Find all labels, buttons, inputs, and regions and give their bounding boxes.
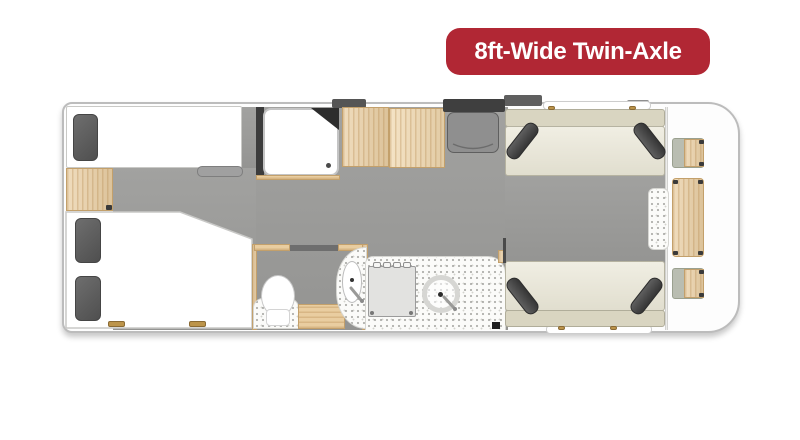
hob-knob-3: [393, 262, 401, 268]
bedroom-floor: [113, 166, 258, 330]
shelf-bracket-3: [699, 270, 704, 274]
single-bed-pillow: [73, 114, 98, 161]
model-badge: 8ft-Wide Twin-Axle: [446, 28, 710, 75]
cabinet-right: [389, 108, 445, 168]
bed-window-stay-1: [108, 321, 125, 327]
shower-drain: [326, 163, 331, 168]
table-bracket-4: [698, 251, 703, 255]
lounge-table-top: [648, 188, 669, 250]
window-stay-top-1: [548, 106, 555, 110]
shower-screen-corner: [311, 108, 339, 130]
hob-foot-2: [409, 311, 413, 315]
lounge-floor: [505, 170, 668, 265]
sink-drain: [438, 292, 443, 297]
double-bed-pillow-2: [75, 276, 101, 321]
bedside-shelf: [197, 166, 243, 177]
toilet-base: [266, 309, 290, 326]
counter-socket: [492, 322, 500, 329]
window-stay-bottom-2: [610, 326, 617, 330]
washroom-door: [290, 245, 338, 251]
table-bracket-2: [698, 180, 703, 184]
basin: [342, 261, 362, 303]
bed-window-stay-2: [189, 321, 206, 327]
window-stay-bottom-1: [558, 326, 565, 330]
basin-drain: [350, 278, 354, 282]
hob-knob-4: [403, 262, 411, 268]
table-bracket-1: [673, 180, 678, 184]
cabinet-left: [342, 107, 389, 167]
roof-fitting: [504, 95, 542, 106]
shower-sill: [256, 175, 340, 180]
table-bracket-3: [673, 251, 678, 255]
entrance-door-mat: [447, 112, 499, 153]
model-badge-label: 8ft-Wide Twin-Axle: [474, 38, 681, 66]
shelf-bracket-4: [699, 293, 704, 297]
hob-knob-2: [383, 262, 391, 268]
hob-foot-1: [370, 311, 374, 315]
window-stay-top-2: [629, 106, 636, 110]
shelf-bracket-1: [699, 140, 704, 144]
kitchen-hob: [368, 266, 416, 317]
wardrobe-hinge: [106, 205, 112, 210]
shelf-bracket-2: [699, 162, 704, 166]
entrance-door-frame: [443, 99, 505, 112]
front-table: [672, 178, 704, 257]
lounge-divider-pole: [503, 238, 506, 263]
double-bed-pillow-1: [75, 218, 101, 263]
caravan-floorplan: 8ft-Wide Twin-Axle: [0, 0, 800, 440]
washroom-wall-top-left: [254, 244, 290, 251]
hob-knob-1: [373, 262, 381, 268]
